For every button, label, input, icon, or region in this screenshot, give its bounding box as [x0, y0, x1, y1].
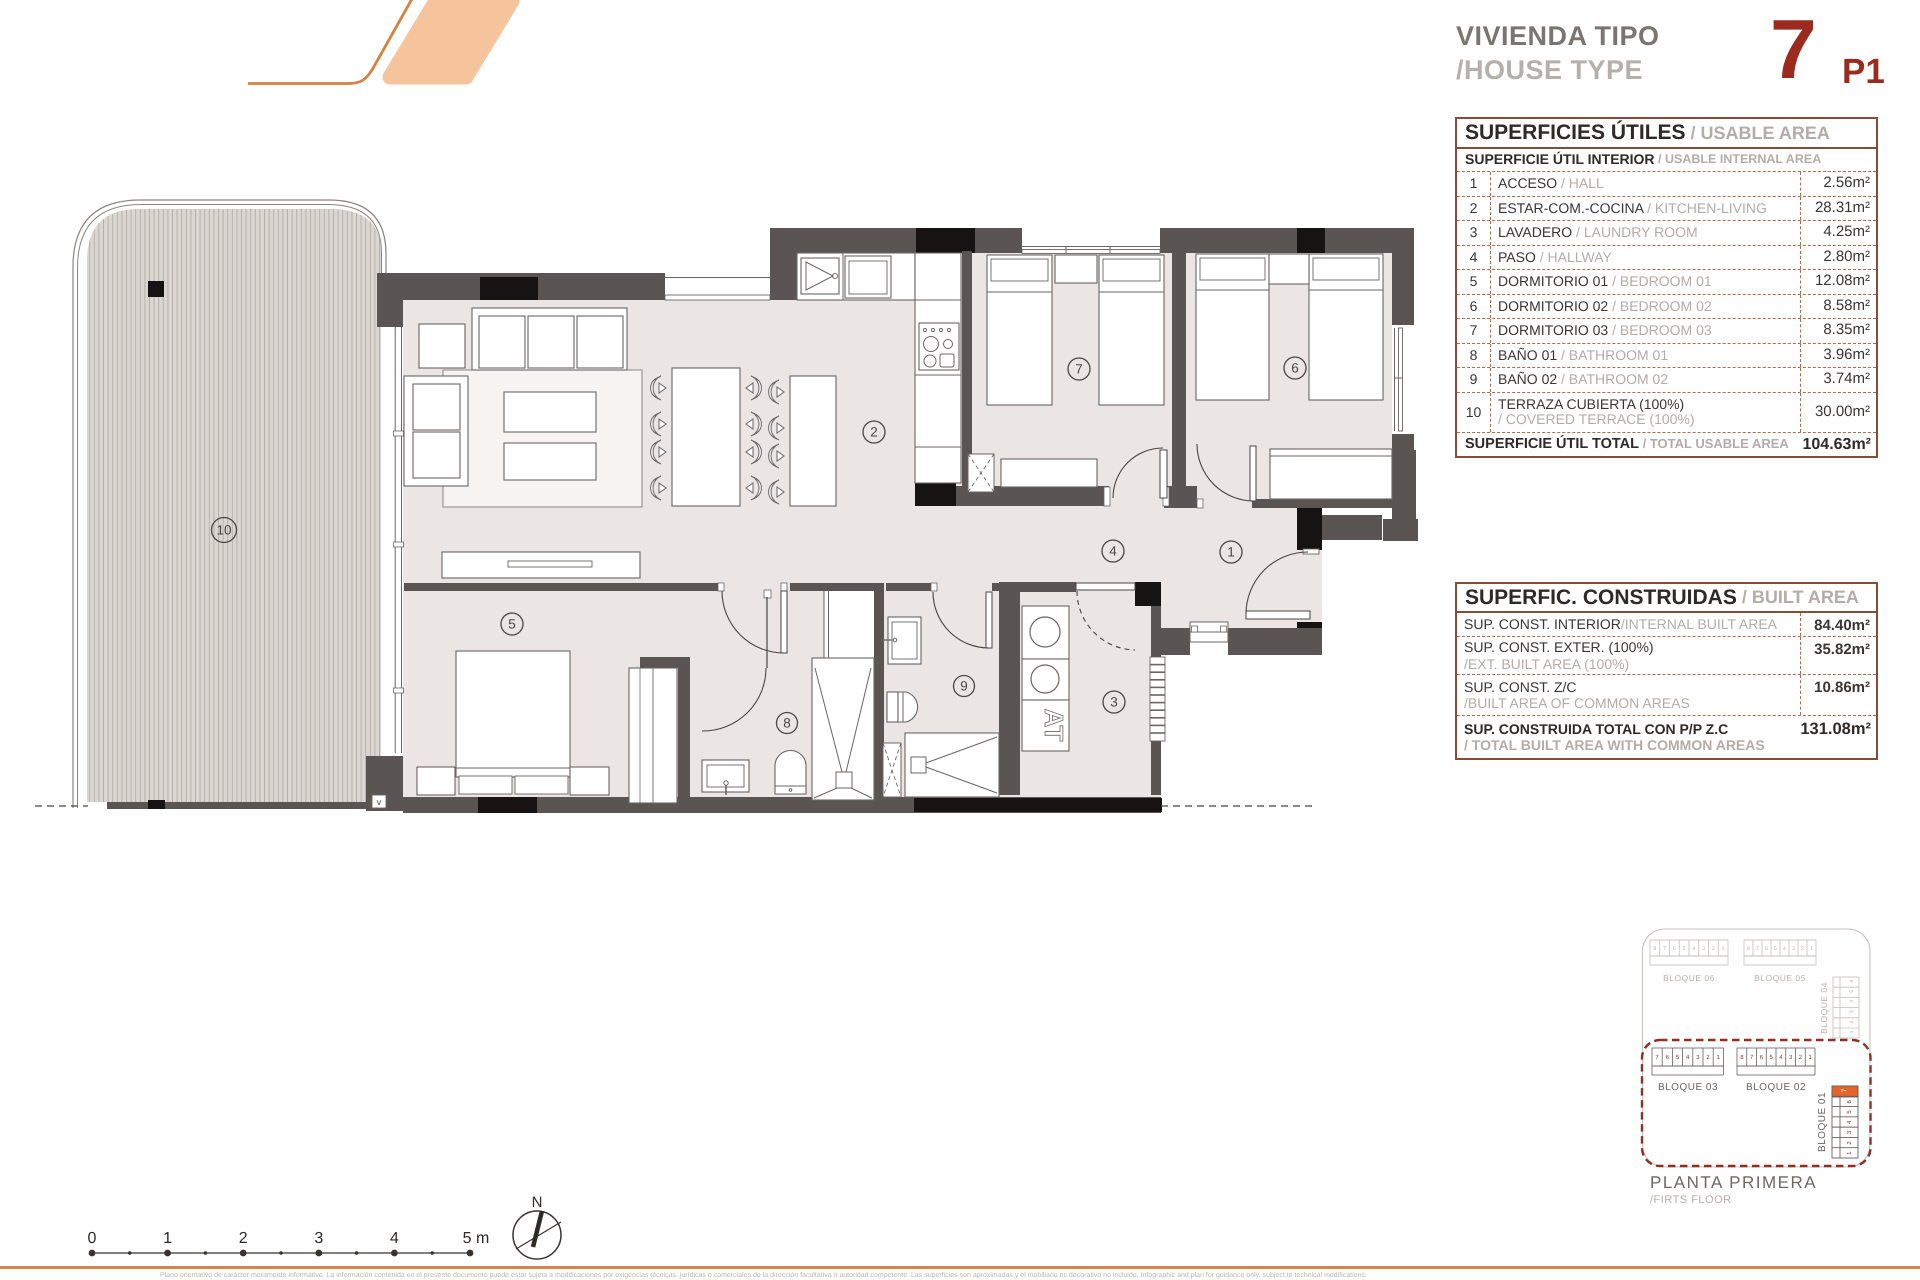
- svg-text:7: 7: [1663, 946, 1666, 952]
- svg-text:BLOQUE 05: BLOQUE 05: [1754, 973, 1806, 983]
- svg-text:/FIRTS FLOOR: /FIRTS FLOOR: [1650, 1194, 1732, 1206]
- svg-text:AT: AT: [1039, 709, 1069, 742]
- svg-text:1: 1: [1227, 545, 1235, 560]
- svg-text:5 m: 5 m: [463, 1230, 490, 1247]
- svg-text:8: 8: [783, 716, 791, 731]
- svg-text:PLANTA PRIMERA: PLANTA PRIMERA: [1650, 1173, 1817, 1192]
- svg-text:10: 10: [216, 523, 231, 538]
- svg-text:2: 2: [870, 425, 878, 440]
- svg-text:5: 5: [1774, 946, 1777, 952]
- svg-text:9: 9: [960, 679, 968, 694]
- svg-text:6: 6: [1673, 946, 1676, 952]
- svg-text:0: 0: [88, 1230, 97, 1247]
- svg-text:BLOQUE 02: BLOQUE 02: [1746, 1082, 1806, 1093]
- svg-text:N: N: [532, 1194, 543, 1211]
- svg-text:3: 3: [1702, 946, 1705, 952]
- svg-text:5: 5: [1683, 946, 1686, 952]
- svg-text:3: 3: [1849, 1010, 1855, 1013]
- svg-text:BLOQUE 04: BLOQUE 04: [1819, 982, 1829, 1034]
- svg-text:BLOQUE 01: BLOQUE 01: [1817, 1092, 1828, 1152]
- svg-text:2: 2: [1712, 946, 1715, 952]
- svg-text:4: 4: [1692, 946, 1695, 952]
- svg-text:4: 4: [390, 1230, 399, 1247]
- svg-text:2: 2: [239, 1230, 248, 1247]
- svg-text:2: 2: [1849, 1020, 1855, 1023]
- svg-text:BLOQUE 03: BLOQUE 03: [1658, 1082, 1718, 1093]
- svg-text:7: 7: [1842, 1088, 1849, 1092]
- svg-text:8: 8: [1747, 946, 1750, 952]
- svg-text:3: 3: [314, 1230, 323, 1247]
- svg-text:7: 7: [1075, 362, 1083, 377]
- svg-text:1: 1: [1810, 946, 1813, 952]
- svg-text:7: 7: [1756, 946, 1759, 952]
- svg-text:3: 3: [1792, 946, 1795, 952]
- svg-text:4: 4: [1849, 1000, 1855, 1003]
- svg-text:4: 4: [1783, 946, 1786, 952]
- svg-text:BLOQUE 06: BLOQUE 06: [1663, 973, 1715, 983]
- svg-text:4: 4: [1109, 544, 1117, 559]
- svg-text:v: v: [377, 797, 382, 807]
- svg-text:1: 1: [1849, 1030, 1855, 1033]
- svg-text:3: 3: [1110, 695, 1118, 710]
- svg-text:8: 8: [1653, 946, 1656, 952]
- svg-text:6: 6: [1849, 979, 1855, 982]
- svg-text:5: 5: [1849, 990, 1855, 993]
- svg-text:1: 1: [163, 1230, 172, 1247]
- svg-text:1: 1: [1722, 946, 1725, 952]
- svg-text:6: 6: [1291, 361, 1299, 376]
- svg-text:6: 6: [1765, 946, 1768, 952]
- svg-text:2: 2: [1801, 946, 1804, 952]
- svg-text:5: 5: [508, 617, 516, 632]
